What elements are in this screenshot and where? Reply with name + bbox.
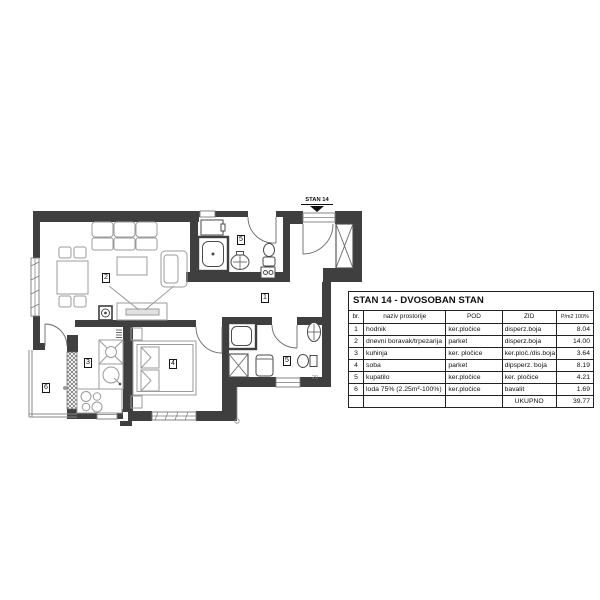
total-value: 39.77 — [556, 396, 593, 408]
shower-icon — [228, 323, 256, 349]
sofa-icon — [92, 222, 157, 250]
table-row: 3 kuhinja ker. pločice ker.ploč./dis.boj… — [349, 348, 594, 360]
table-row: 5 kupatilo ker.pločice ker. pločice 4.21 — [349, 372, 594, 384]
toilet-icon — [261, 244, 275, 279]
bathroom-top-window — [200, 211, 215, 217]
stove-icon — [77, 389, 122, 413]
apartment-table: STAN 14 - DVOSOBAN STAN br. naziv prosto… — [348, 291, 594, 408]
col-header-br: br. — [349, 311, 364, 324]
shower-icon — [198, 237, 228, 271]
room-label-bedroom: 4 — [169, 359, 177, 369]
total-label: UKUPNO — [502, 396, 556, 408]
armchair-icon — [161, 251, 187, 287]
bedroom-door-arc — [196, 327, 222, 353]
floor-plan-page: STAN 14 1 2 3 4 5 5 6 20 STAN 14 - DVOSO… — [0, 0, 600, 600]
shaft-icon — [336, 224, 353, 268]
col-header-pod: POD — [446, 311, 502, 324]
loggia-dot — [63, 386, 67, 390]
hatched-wall — [67, 352, 77, 409]
boiler-icon — [201, 220, 225, 235]
dimension-label: 20 — [312, 375, 318, 381]
bedroom-window — [152, 412, 196, 420]
bathroom-bottom-door-arc — [272, 325, 297, 348]
room-label-bathroom-bottom: 5 — [283, 356, 291, 366]
table-title-row: STAN 14 - DVOSOBAN STAN — [349, 292, 594, 311]
entrance-label: STAN 14 — [297, 197, 337, 203]
table-row: 2 dnevni boravak/trpezarija parket dispe… — [349, 336, 594, 348]
table-row: 6 loda 75% (2.25m²-100%) ker.pločice bav… — [349, 384, 594, 396]
bathroom-window — [276, 378, 300, 387]
table-header-row: br. naziv prostorije POD ZID P/m2 100% — [349, 311, 594, 324]
entrance-arrow-icon — [301, 205, 333, 213]
coffee-table-icon — [117, 257, 147, 275]
dining-table-icon — [57, 247, 88, 307]
room-label-hallway: 1 — [261, 293, 269, 303]
living-window — [31, 258, 39, 316]
sink-icon — [231, 252, 249, 270]
table-row: 4 soba parket dipsperz. boja 8.19 — [349, 360, 594, 372]
toilet-icon — [298, 355, 318, 368]
heater-icon — [99, 306, 112, 320]
tv-icon — [109, 286, 174, 320]
washing-machine-icon — [256, 355, 273, 376]
room-label-kitchen: 3 — [84, 358, 92, 368]
table-row: 1 hodnik ker.pločice disperz.boja 8.04 — [349, 324, 594, 336]
table-title: STAN 14 - DVOSOBAN STAN — [349, 292, 594, 311]
col-header-zid: ZID — [502, 311, 556, 324]
kitchen-counter-icon — [99, 330, 123, 389]
sink-icon — [308, 323, 321, 342]
col-header-naziv: naziv prostorije — [364, 311, 446, 324]
room-label-living: 2 — [102, 273, 110, 283]
entrance-door-sill — [303, 213, 335, 222]
table-total-row: UKUPNO 39.77 — [349, 396, 594, 408]
shaft-icon — [229, 354, 248, 377]
bathroom-top-door-arc — [248, 217, 276, 243]
room-label-bathroom-top: 5 — [237, 235, 245, 245]
room-label-loggia: 6 — [42, 383, 50, 393]
bed-icon — [131, 328, 196, 408]
col-header-pm2: P/m2 100% — [556, 311, 593, 324]
entrance-door-arc — [303, 224, 333, 254]
loggia-door-arc — [45, 324, 67, 346]
